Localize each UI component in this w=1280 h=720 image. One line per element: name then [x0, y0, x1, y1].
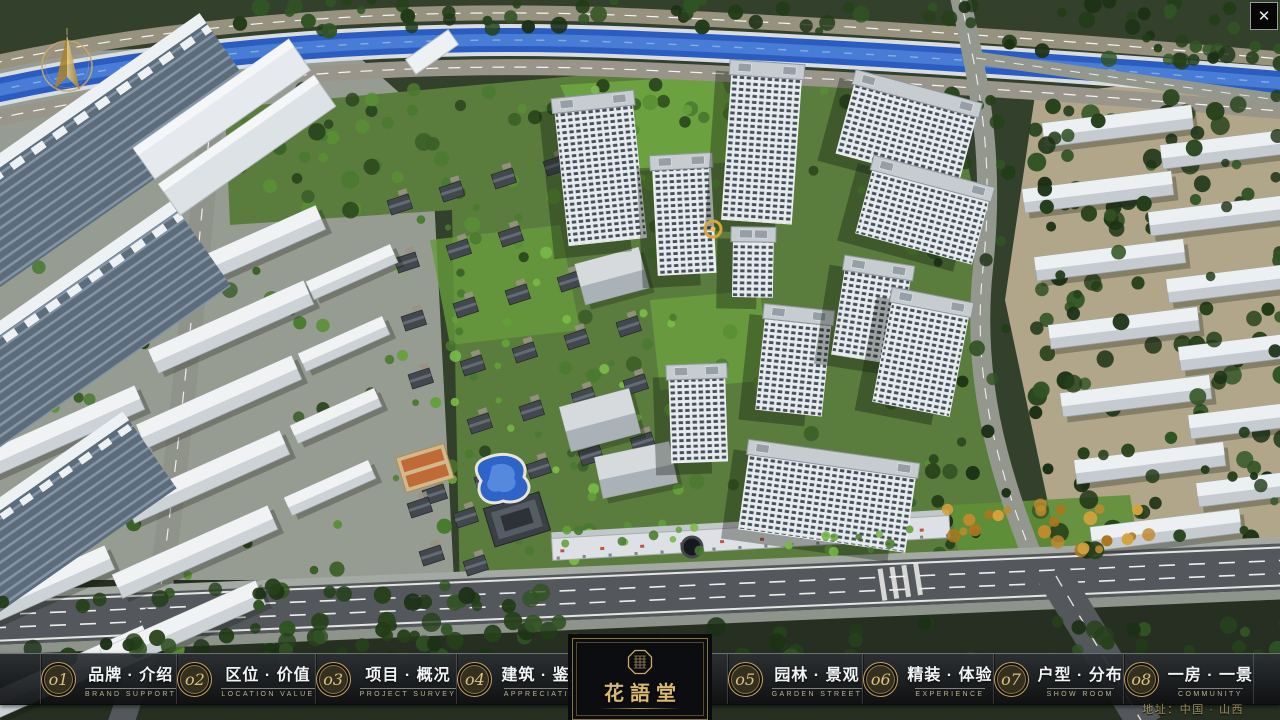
number-badge: o8 [1124, 662, 1159, 697]
number-badge: o7 [994, 662, 1029, 697]
close-button[interactable]: ✕ [1250, 2, 1278, 30]
nav-label-en: GARDEN STREET [772, 688, 863, 698]
nav-item-brand[interactable]: o1 品牌 · 介绍BRAND SUPPORT [40, 654, 176, 704]
presentation-screen: ✕ o1 品牌 · 介绍BRAND SUPPORT o2 区位 · 价值LOCA… [0, 0, 1280, 720]
masterplan-render [0, 0, 1280, 720]
number-badge: o2 [177, 662, 212, 697]
nav-label-zh: 一房 · 一景 [1168, 661, 1253, 685]
number-badge: o1 [41, 662, 76, 697]
seal-icon [627, 649, 653, 675]
logo-tagline-line [598, 708, 682, 709]
nav-item-architecture[interactable]: o4 建筑 · 鉴赏APPRECIATION [456, 654, 586, 704]
nav-label-en: BRAND SUPPORT [85, 688, 176, 698]
nav-item-project[interactable]: o3 项目 · 概况PROJECT SURVEY [315, 654, 457, 704]
navbar-left-group: o1 品牌 · 介绍BRAND SUPPORT o2 区位 · 价值LOCATI… [0, 654, 587, 704]
nav-item-floorplan[interactable]: o7 户型 · 分布SHOW ROOM [993, 654, 1123, 704]
nav-label-zh: 区位 · 价值 [225, 661, 310, 685]
number-badge: o6 [863, 662, 898, 697]
nav-label-en: EXPERIENCE [915, 688, 984, 698]
number-badge: o4 [457, 662, 492, 697]
nav-item-garden[interactable]: o5 园林 · 景观GARDEN STREET [727, 654, 863, 704]
nav-item-location[interactable]: o2 区位 · 价值LOCATION VALUE [176, 654, 314, 704]
logo-button[interactable]: 花語堂 [572, 638, 708, 720]
nav-label-zh: 精装 · 体验 [907, 661, 992, 685]
close-icon: ✕ [1258, 9, 1271, 24]
nav-label-zh: 园林 · 景观 [774, 661, 859, 685]
project-address: 地址：中国 · 山西 [1142, 701, 1244, 717]
nav-label-en: COMMUNITY [1178, 688, 1243, 698]
nav-label-en: PROJECT SURVEY [360, 688, 457, 698]
nav-label-zh: 品牌 · 介绍 [88, 661, 173, 685]
nav-label-zh: 户型 · 分布 [1038, 661, 1123, 685]
nav-label-en: LOCATION VALUE [221, 688, 314, 698]
logo-title: 花語堂 [598, 677, 682, 706]
number-badge: o3 [316, 662, 351, 697]
nav-label-zh: 项目 · 概况 [365, 661, 450, 685]
nav-item-interior[interactable]: o6 精装 · 体验EXPERIENCE [862, 654, 992, 704]
navbar-right-group: o5 园林 · 景观GARDEN STREET o6 精装 · 体验EXPERI… [727, 654, 1280, 704]
nav-label-en: SHOW ROOM [1047, 688, 1114, 698]
number-badge: o5 [728, 662, 763, 697]
pond [476, 454, 529, 503]
nav-item-community[interactable]: o8 一房 · 一景COMMUNITY [1123, 654, 1254, 704]
